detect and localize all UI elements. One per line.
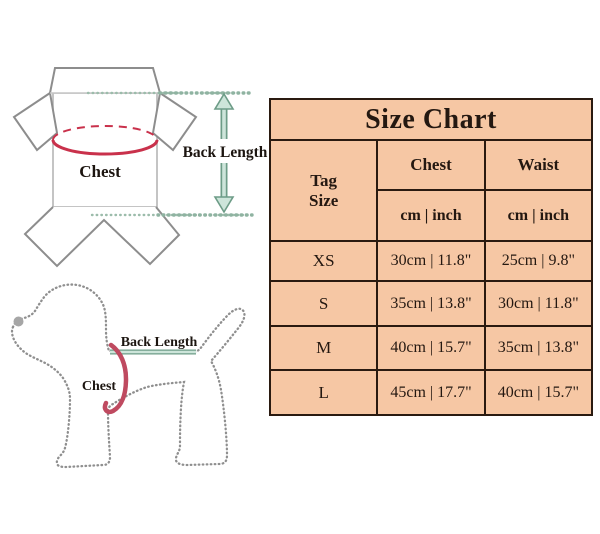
xs-waist-value: 25cm | 9.8": [485, 241, 592, 281]
chest-column-header: Chest: [377, 140, 484, 190]
m-chest-value: 40cm | 15.7": [377, 326, 484, 370]
garment-chest-label: Chest: [79, 162, 121, 181]
dog-nose-icon: [14, 317, 24, 327]
chest-ellipse-dashed-arc: [53, 126, 157, 140]
waist-unit-header: cm | inch: [485, 190, 592, 241]
s-waist-value: 30cm | 11.8": [485, 281, 592, 326]
tag-header-line2: Size: [271, 191, 376, 211]
xs-chest-value: 30cm | 11.8": [377, 241, 484, 281]
tag-header-line1: Tag: [271, 171, 376, 191]
garment-left-sleeve: [14, 93, 57, 150]
table-row-m: M 40cm | 15.7" 35cm | 13.8": [270, 326, 592, 370]
dog-outline: [12, 285, 244, 467]
size-chart-page: Chest Back Length Back Length Chest Size…: [0, 0, 600, 534]
garment-back-length-label: Back Length: [183, 144, 268, 161]
waist-column-header: Waist: [485, 140, 592, 190]
s-chest-value: 35cm | 13.8": [377, 281, 484, 326]
table-row-l: L 45cm | 17.7" 40cm | 15.7": [270, 370, 592, 415]
size-tag-l: L: [270, 370, 377, 415]
dog-back-length-label: Back Length: [121, 335, 198, 350]
l-waist-value: 40cm | 15.7": [485, 370, 592, 415]
dog-chest-label: Chest: [82, 379, 117, 394]
garment-collar: [50, 68, 160, 93]
chest-unit-header: cm | inch: [377, 190, 484, 241]
tag-size-header: Tag Size: [270, 140, 377, 241]
size-tag-m: M: [270, 326, 377, 370]
size-tag-s: S: [270, 281, 377, 326]
l-chest-value: 45cm | 17.7": [377, 370, 484, 415]
chest-ellipse-solid-arc: [53, 140, 157, 154]
table-row-s: S 35cm | 13.8" 30cm | 11.8": [270, 281, 592, 326]
header-row: Tag Size Chest Waist: [270, 140, 592, 190]
m-waist-value: 35cm | 13.8": [485, 326, 592, 370]
size-chart-title: Size Chart: [270, 99, 592, 140]
dog-diagram: Back Length Chest: [12, 285, 244, 467]
arrow-head-down-icon: [215, 197, 233, 212]
size-tag-xs: XS: [270, 241, 377, 281]
garment-diagram: Chest Back Length: [14, 68, 268, 266]
table-row-xs: XS 30cm | 11.8" 25cm | 9.8": [270, 241, 592, 281]
garment-right-sleeve: [153, 93, 196, 150]
size-chart-table: Size Chart Tag Size Chest Waist cm | inc…: [269, 98, 593, 416]
arrow-head-up-icon: [215, 94, 233, 109]
title-row: Size Chart: [270, 99, 592, 140]
